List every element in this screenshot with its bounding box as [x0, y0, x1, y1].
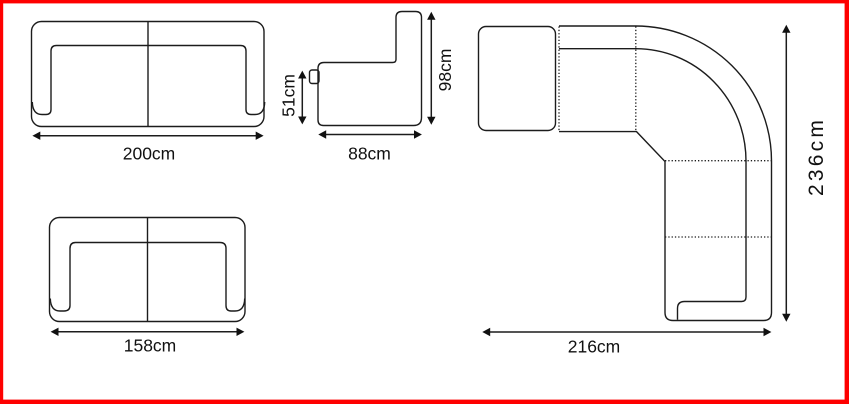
svg-text:216cm: 216cm: [568, 337, 621, 357]
svg-text:200cm: 200cm: [123, 144, 176, 164]
svg-text:158cm: 158cm: [124, 335, 177, 355]
svg-text:88cm: 88cm: [348, 143, 391, 163]
svg-text:51cm: 51cm: [278, 74, 298, 117]
svg-text:98cm: 98cm: [435, 49, 455, 92]
svg-text:236cm: 236cm: [805, 117, 828, 196]
